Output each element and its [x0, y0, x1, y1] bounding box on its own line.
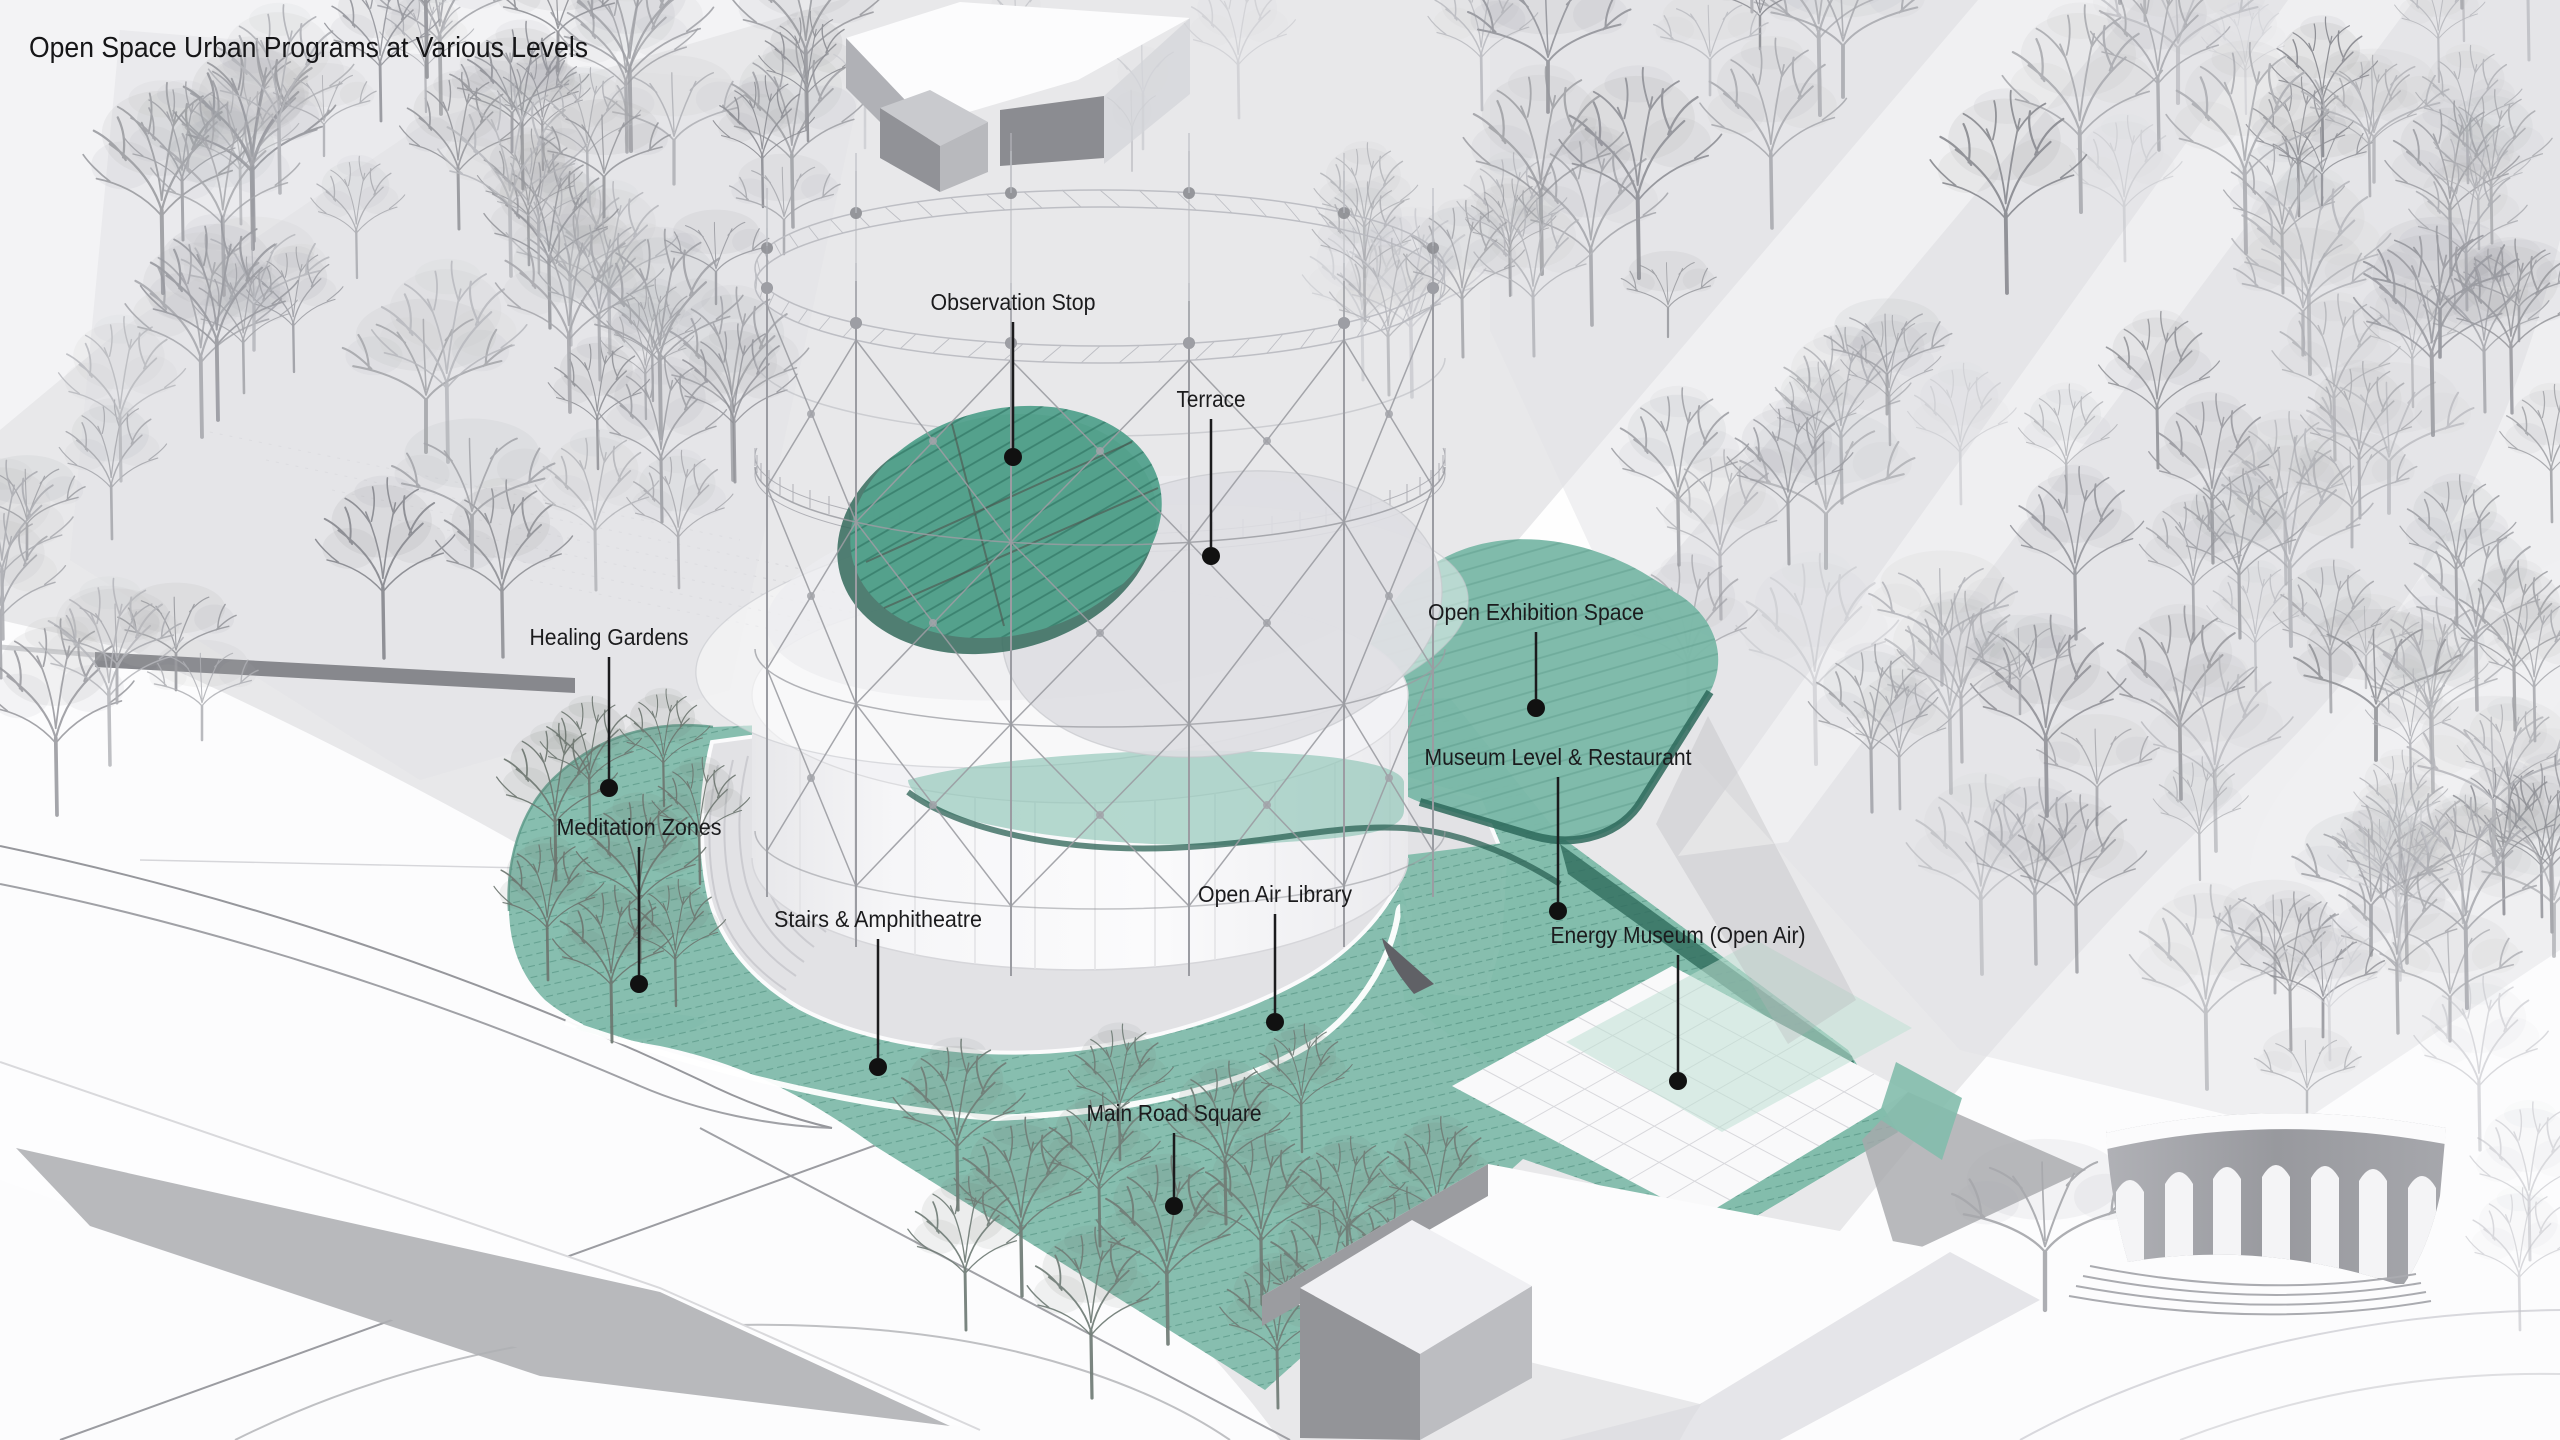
- svg-text:Main Road Square: Main Road Square: [1087, 1100, 1262, 1126]
- svg-text:Stairs & Amphitheatre: Stairs & Amphitheatre: [774, 906, 982, 932]
- svg-text:Museum Level & Restaurant: Museum Level & Restaurant: [1425, 744, 1693, 770]
- svg-text:Meditation Zones: Meditation Zones: [557, 814, 722, 840]
- svg-text:Energy Museum (Open Air): Energy Museum (Open Air): [1551, 922, 1806, 948]
- svg-text:Terrace: Terrace: [1177, 386, 1246, 412]
- svg-text:Open Air Library: Open Air Library: [1198, 881, 1352, 907]
- svg-text:Observation Stop: Observation Stop: [931, 289, 1096, 315]
- svg-text:Healing Gardens: Healing Gardens: [530, 624, 689, 650]
- svg-text:Open Space Urban Programs at V: Open Space Urban Programs at Various Lev…: [29, 32, 588, 64]
- svg-text:Open Exhibition Space: Open Exhibition Space: [1428, 599, 1644, 625]
